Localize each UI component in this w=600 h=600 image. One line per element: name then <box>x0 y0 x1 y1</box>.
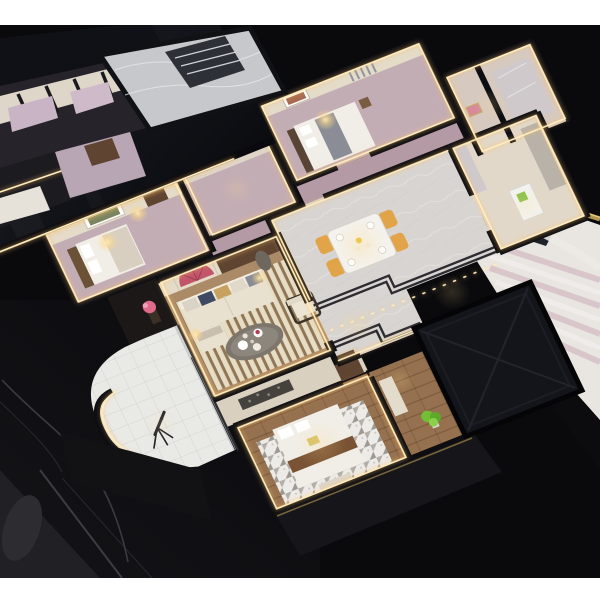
letterbox-top <box>0 0 600 25</box>
photo-stage <box>0 0 600 600</box>
letterbox-bottom <box>0 578 600 600</box>
model-photo <box>0 0 600 600</box>
